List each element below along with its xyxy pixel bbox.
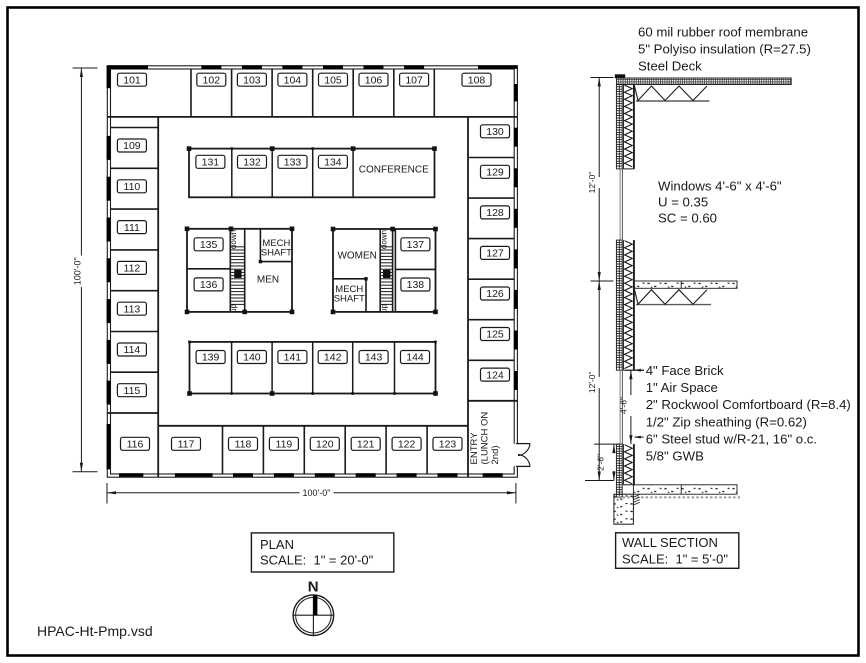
svg-text:4" Face Brick: 4" Face Brick [646,363,724,378]
svg-text:N: N [308,579,319,596]
svg-text:Steel Deck: Steel Deck [638,59,702,74]
svg-text:106: 106 [365,74,383,86]
svg-text:WOMEN: WOMEN [337,250,376,261]
svg-text:107: 107 [405,74,423,86]
svg-text:2'-6": 2'-6" [596,454,606,471]
svg-text:131: 131 [202,157,220,169]
svg-text:118: 118 [235,439,252,451]
svg-text:1" Air Space: 1" Air Space [646,380,718,395]
svg-text:12'-0": 12'-0" [587,172,597,194]
svg-text:140: 140 [243,352,261,364]
svg-text:119: 119 [276,439,293,451]
svg-text:ENTRY: ENTRY [469,432,480,465]
svg-text:WALL SECTION: WALL SECTION [622,535,718,550]
svg-text:down: down [229,230,238,249]
svg-text:138: 138 [407,279,425,291]
svg-text:128: 128 [486,207,504,219]
svg-text:143: 143 [365,352,383,364]
svg-text:122: 122 [398,439,416,451]
svg-text:109: 109 [123,140,141,152]
svg-text:116: 116 [127,439,144,451]
svg-text:139: 139 [202,352,220,364]
svg-text:CONFERENCE: CONFERENCE [359,164,429,175]
svg-text:2" Rockwool Comfortboard (R=8.: 2" Rockwool Comfortboard (R=8.4) [646,397,851,412]
svg-text:12'-0": 12'-0" [587,371,597,393]
svg-text:115: 115 [124,385,141,397]
svg-text:133: 133 [284,157,302,169]
svg-text:110: 110 [124,181,141,193]
svg-text:HPAC-Ht-Pmp.vsd: HPAC-Ht-Pmp.vsd [37,623,153,639]
svg-text:142: 142 [324,352,342,364]
svg-text:100'-0": 100'-0" [73,257,83,285]
svg-text:(LUNCH ON: (LUNCH ON [480,412,491,465]
svg-text:101: 101 [123,74,141,86]
svg-text:5" Polyiso insulation (R=27.5): 5" Polyiso insulation (R=27.5) [638,42,811,57]
svg-text:144: 144 [406,352,424,364]
svg-text:113: 113 [124,303,141,315]
svg-text:121: 121 [357,439,375,451]
svg-text:6" Steel stud w/R-21, 16" o.c.: 6" Steel stud w/R-21, 16" o.c. [646,431,817,446]
svg-text:up: up [229,304,238,313]
svg-text:137: 137 [407,239,425,251]
svg-text:up: up [380,304,389,313]
svg-text:100'-0": 100'-0" [303,488,331,498]
svg-text:PLAN: PLAN [260,537,294,552]
svg-text:127: 127 [486,248,504,260]
svg-text:U = 0.35: U = 0.35 [658,195,708,210]
svg-text:4'-6": 4'-6" [618,397,628,414]
svg-text:SHAFT: SHAFT [261,248,292,259]
svg-text:130: 130 [486,126,504,138]
svg-text:SCALE: 1" = 20'-0": SCALE: 1" = 20'-0" [260,553,374,568]
svg-text:102: 102 [203,74,221,86]
svg-text:129: 129 [486,167,504,179]
svg-text:105: 105 [324,74,342,86]
svg-text:135: 135 [200,239,218,251]
svg-text:down: down [380,230,389,249]
svg-text:123: 123 [439,439,457,451]
svg-text:125: 125 [486,329,504,341]
svg-text:103: 103 [243,74,261,86]
svg-text:136: 136 [200,279,218,291]
svg-text:117: 117 [178,439,195,451]
svg-text:126: 126 [486,288,504,300]
svg-text:SC = 0.60: SC = 0.60 [658,211,717,226]
svg-text:124: 124 [486,369,504,381]
svg-text:108: 108 [468,74,486,86]
svg-text:MEN: MEN [257,274,279,285]
svg-text:132: 132 [243,157,261,169]
svg-text:114: 114 [124,344,141,356]
svg-text:104: 104 [284,74,302,86]
svg-text:Windows 4'-6" x 4'-6": Windows 4'-6" x 4'-6" [658,179,782,194]
svg-text:120: 120 [316,439,334,451]
svg-text:5/8" GWB: 5/8" GWB [646,449,704,464]
svg-text:2nd): 2nd) [490,445,501,464]
svg-text:SCALE: 1" = 5'-0": SCALE: 1" = 5'-0" [622,552,728,567]
svg-text:112: 112 [124,263,141,275]
svg-text:SHAFT: SHAFT [334,293,365,304]
svg-text:1/2" Zip sheathing (R=0.62): 1/2" Zip sheathing (R=0.62) [646,414,807,429]
svg-text:60 mil rubber roof membrane: 60 mil rubber roof membrane [638,25,808,40]
svg-text:141: 141 [284,352,302,364]
svg-text:111: 111 [124,222,140,234]
svg-text:134: 134 [324,157,342,169]
